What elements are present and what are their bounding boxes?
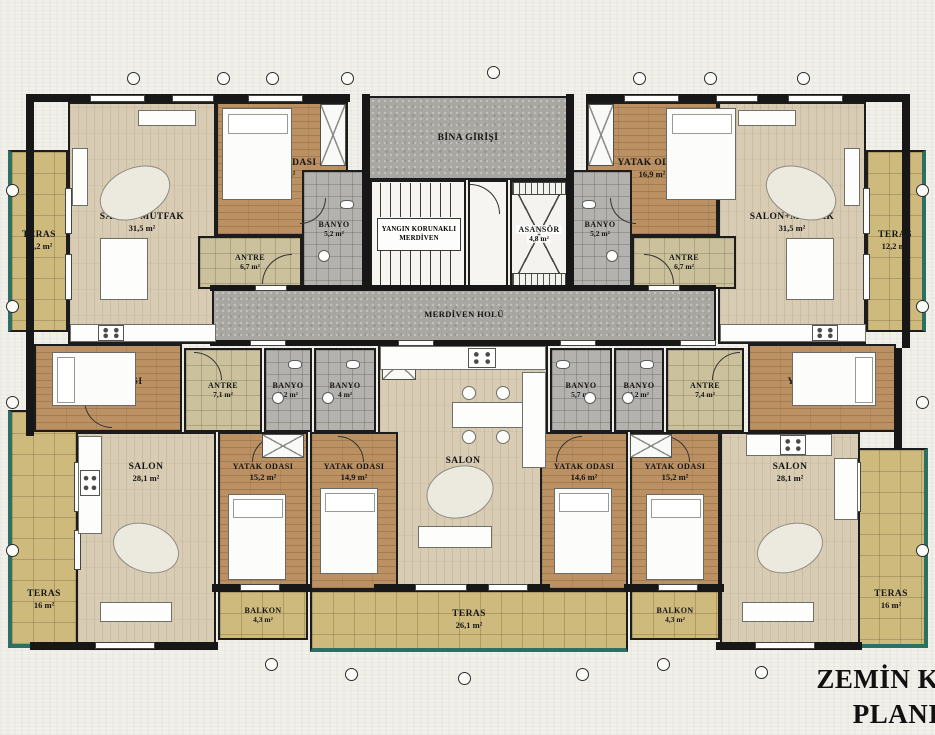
room-area: 6,7 m² xyxy=(240,263,260,271)
room-label: SALON xyxy=(773,462,808,473)
grid-marker-icon xyxy=(345,668,358,681)
sofa xyxy=(418,526,492,548)
room-area: 14,9 m² xyxy=(341,473,368,482)
entrance-label: BİNA GİRİŞİ xyxy=(438,133,499,144)
room-label: BANYO xyxy=(566,381,597,390)
wardrobe xyxy=(262,434,304,458)
kitchen-counter xyxy=(834,458,858,520)
window xyxy=(488,584,528,591)
door-opening xyxy=(255,285,287,291)
sofa xyxy=(844,148,860,206)
door-opening xyxy=(250,340,286,346)
room-area: 4,3 m² xyxy=(253,616,273,624)
stove xyxy=(812,325,838,341)
grid-marker-icon xyxy=(797,72,810,85)
sofa xyxy=(72,148,88,206)
room-label: BALKON xyxy=(656,606,693,615)
window xyxy=(624,95,679,102)
room-area: 5,2 m² xyxy=(324,230,344,238)
window xyxy=(716,95,758,102)
wall xyxy=(566,94,574,288)
room-area: 4,3 m² xyxy=(665,616,685,624)
room-label: ANTRE xyxy=(690,381,720,390)
window xyxy=(74,530,81,570)
sink xyxy=(582,200,596,209)
grid-marker-icon xyxy=(6,184,19,197)
kitchen-counter xyxy=(522,372,546,468)
plan-title: ZEMİN KAT PLANI xyxy=(786,662,935,732)
grid-marker-icon xyxy=(704,72,717,85)
bed xyxy=(792,352,876,406)
stair-label-line2: MERDİVEN xyxy=(399,235,438,244)
stove xyxy=(468,348,496,368)
stair-label: YANGIN KORUNAKLI MERDİVEN xyxy=(377,218,461,251)
room-label: ANTRE xyxy=(208,381,238,390)
plan-title-line1: ZEMİN KAT xyxy=(786,662,935,697)
grid-marker-icon xyxy=(6,300,19,313)
elevator-area: 4,8 m² xyxy=(527,235,551,243)
balcony-door xyxy=(240,584,280,591)
toilet xyxy=(622,392,634,404)
room-area: 28,1 m² xyxy=(133,474,160,483)
bed xyxy=(646,494,704,580)
room-label: BANYO xyxy=(319,220,350,229)
bed xyxy=(228,494,286,580)
room-label: BALKON xyxy=(244,606,281,615)
room-label: BANYO xyxy=(585,220,616,229)
room-area: 7,1 m² xyxy=(213,391,233,399)
toilet xyxy=(318,250,330,262)
room-area: 16 m² xyxy=(881,601,901,610)
room-area: 6,7 m² xyxy=(674,263,694,271)
window xyxy=(172,95,214,102)
grid-marker-icon xyxy=(916,300,929,313)
room-area: 7,4 m² xyxy=(695,391,715,399)
stair-treads-lower xyxy=(380,251,458,285)
window xyxy=(863,188,870,234)
window xyxy=(248,95,303,102)
room-area: 28,1 m² xyxy=(777,474,804,483)
grid-marker-icon xyxy=(217,72,230,85)
wardrobe xyxy=(588,104,614,166)
chair xyxy=(462,430,476,444)
sink xyxy=(288,360,302,369)
room-label: ANTRE xyxy=(235,253,265,262)
room-banyo-top-right: BANYO 5,2 m² xyxy=(568,170,632,289)
room-area: 15,2 m² xyxy=(250,473,277,482)
room-area: 15,2 m² xyxy=(662,473,689,482)
dining-table xyxy=(100,238,148,300)
building-entrance: BİNA GİRİŞİ xyxy=(368,96,568,180)
grid-marker-icon xyxy=(127,72,140,85)
sofa xyxy=(100,602,172,622)
kitchen-counter xyxy=(70,324,216,342)
room-banyo-bottom-right: BANYO 4,2 m² xyxy=(614,348,664,432)
sofa xyxy=(138,110,196,126)
grid-marker-icon xyxy=(265,658,278,671)
door-opening xyxy=(680,340,716,346)
room-area: 16 m² xyxy=(34,601,54,610)
stove xyxy=(98,325,124,341)
wall xyxy=(894,348,902,450)
grid-marker-icon xyxy=(266,72,279,85)
room-label: BANYO xyxy=(330,381,361,390)
stair-label-line1: YANGIN KORUNAKLI xyxy=(382,226,457,235)
bed xyxy=(554,488,612,574)
room-label: YATAK ODASI xyxy=(233,462,294,472)
room-area: 4 m² xyxy=(338,391,352,399)
grid-marker-icon xyxy=(633,72,646,85)
bed xyxy=(666,108,736,200)
sink xyxy=(346,360,360,369)
floor-plan-canvas: TERAS 12,2 m² TERAS 12,2 m² TERAS 16 m² … xyxy=(0,0,935,735)
door-opening xyxy=(648,285,680,291)
stove xyxy=(80,470,100,496)
window xyxy=(65,188,72,234)
kitchen-counter xyxy=(380,346,546,370)
balcony-door xyxy=(658,584,698,591)
plan-title-line2: PLANI xyxy=(786,697,935,732)
room-salon-mutfak-right: SALON+MUTFAK 31,5 m² xyxy=(718,102,866,344)
toilet xyxy=(606,250,618,262)
room-area: 14,6 m² xyxy=(571,473,598,482)
room-balkon-left: BALKON 4,3 m² xyxy=(218,590,308,640)
room-label: ANTRE xyxy=(669,253,699,262)
window xyxy=(90,95,145,102)
hall-label: MERDİVEN HOLÜ xyxy=(424,310,504,320)
door-opening xyxy=(560,340,596,346)
bed xyxy=(320,488,378,574)
room-label: TERAS xyxy=(452,609,486,620)
window xyxy=(65,254,72,300)
kitchen-counter xyxy=(720,324,866,342)
room-label: TERAS xyxy=(874,589,908,600)
room-label: BANYO xyxy=(624,381,655,390)
wall xyxy=(362,94,370,288)
chair xyxy=(496,430,510,444)
elevator-counterweight-top xyxy=(512,182,566,195)
bed xyxy=(52,352,136,406)
stair-treads-upper xyxy=(380,183,458,217)
room-label: BANYO xyxy=(273,381,304,390)
stove xyxy=(780,435,806,455)
wardrobe xyxy=(320,104,346,166)
grid-marker-icon xyxy=(487,66,500,79)
room-teras-bottom-left: TERAS 16 m² xyxy=(8,410,78,648)
grid-marker-icon xyxy=(657,658,670,671)
room-area: 5,2 m² xyxy=(590,230,610,238)
grid-marker-icon xyxy=(576,668,589,681)
wall xyxy=(902,94,910,348)
grid-marker-icon xyxy=(916,184,929,197)
sofa xyxy=(742,602,814,622)
grid-marker-icon xyxy=(458,672,471,685)
window xyxy=(415,584,467,591)
grid-marker-icon xyxy=(341,72,354,85)
grid-marker-icon xyxy=(6,396,19,409)
room-label: YATAK ODASI xyxy=(645,462,706,472)
sink xyxy=(640,360,654,369)
room-area: 26,1 m² xyxy=(456,621,483,630)
elevator-label: ASANSÖR xyxy=(516,225,561,234)
wardrobe xyxy=(630,434,672,458)
wall xyxy=(26,94,34,348)
sofa xyxy=(738,110,796,126)
room-area: 31,5 m² xyxy=(129,224,156,233)
room-label: SALON xyxy=(129,462,164,473)
elevator: ASANSÖR 4,8 m² xyxy=(510,180,568,288)
chair xyxy=(496,386,510,400)
bed xyxy=(222,108,292,200)
room-banyo-top-left: BANYO 5,2 m² xyxy=(302,170,366,289)
window xyxy=(755,642,815,649)
toilet xyxy=(272,392,284,404)
toilet xyxy=(584,392,596,404)
toilet xyxy=(322,392,334,404)
window xyxy=(788,95,843,102)
dining-table xyxy=(786,238,834,300)
room-teras-bottom-center: TERAS 26,1 m² xyxy=(310,590,628,652)
window xyxy=(863,254,870,300)
dining-table xyxy=(452,402,530,428)
grid-marker-icon xyxy=(755,666,768,679)
room-salon-mutfak-left: SALON+MUTFAK 31,5 m² xyxy=(68,102,216,344)
window xyxy=(95,642,155,649)
room-label: YATAK ODASI xyxy=(324,462,385,472)
room-area: 31,5 m² xyxy=(779,224,806,233)
room-banyo-center-left: BANYO 4 m² xyxy=(314,348,376,432)
stair-hall: MERDİVEN HOLÜ xyxy=(212,288,716,342)
room-label: TERAS xyxy=(27,589,61,600)
wall xyxy=(26,348,34,436)
sink xyxy=(340,200,354,209)
room-label: YATAK ODASI xyxy=(554,462,615,472)
grid-marker-icon xyxy=(916,544,929,557)
grid-marker-icon xyxy=(916,396,929,409)
sink xyxy=(556,360,570,369)
grid-marker-icon xyxy=(6,544,19,557)
room-balkon-right: BALKON 4,3 m² xyxy=(630,590,720,640)
chair xyxy=(462,386,476,400)
room-area: 16,9 m² xyxy=(639,170,666,179)
